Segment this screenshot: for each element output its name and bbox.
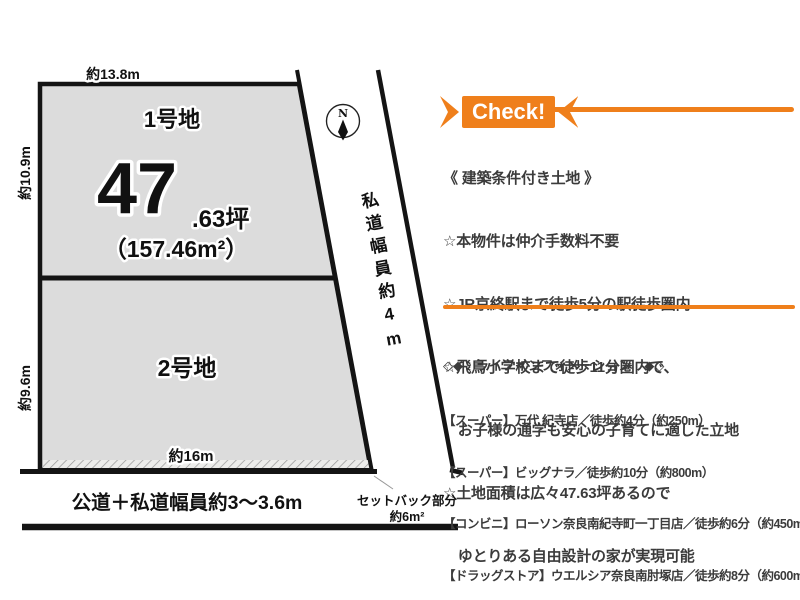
check-badge-label: Check!	[462, 96, 555, 128]
lot1-name: 1号地	[144, 107, 200, 132]
dim-bottom-label: 約16m	[168, 447, 213, 465]
lot1-area-m2: （157.46m²）	[104, 236, 248, 262]
list-item: 【スーパー】万代 紀寺店／徒歩約4分（約250m）	[443, 413, 800, 430]
setback-leader-line	[374, 476, 393, 489]
land-sale-flyer: N 約13.8m 約10.9m 約9.6m 約16m 1号地 47 .63坪 （…	[0, 0, 800, 600]
list-item: 【スーパー】ビッグナラ／徒歩約10分（約800m）	[443, 465, 800, 482]
lot1-area-tsubo-big: 47	[97, 149, 177, 229]
lot2-name: 2号地	[158, 355, 217, 381]
life-information-list: ◇◆ ライフインフォメーション ◆◇ 【スーパー】万代 紀寺店／徒歩約4分（約2…	[443, 323, 800, 600]
accent-rule-divider	[443, 305, 795, 309]
list-item: 【コンビニ】ローソン奈良南紀寺町一丁目店／徒歩約6分（約450m）	[443, 516, 800, 533]
dim-left-upper-label: 約10.9m	[17, 146, 33, 200]
front-road-label: 公道＋私道幅員約3〜3.6m	[72, 491, 303, 514]
list-item: ☆本物件は仲介手数料不要	[443, 231, 781, 252]
accent-rule-top	[551, 107, 794, 112]
life-information-heading: ◇◆ ライフインフォメーション ◆◇	[443, 357, 800, 374]
ribbon-right-chevron-icon	[558, 96, 578, 128]
list-item: 【ドラッグストア】ウエルシア奈良南肘塚店／徒歩約8分（約600m）	[443, 568, 800, 585]
compass-n-label: N	[338, 107, 348, 120]
list-item: 《 建築条件付き土地 》	[443, 168, 781, 189]
ribbon-left-chevron-icon	[440, 96, 459, 128]
compass-north-icon: N	[327, 105, 360, 141]
setback-label-line2: 約6m²	[390, 509, 425, 524]
dim-top-label: 約13.8m	[86, 66, 140, 82]
check-ribbon: Check!	[440, 96, 578, 128]
dim-left-lower-label: 約9.6m	[17, 365, 33, 411]
lot1-area-tsubo-small: .63坪	[192, 206, 249, 233]
